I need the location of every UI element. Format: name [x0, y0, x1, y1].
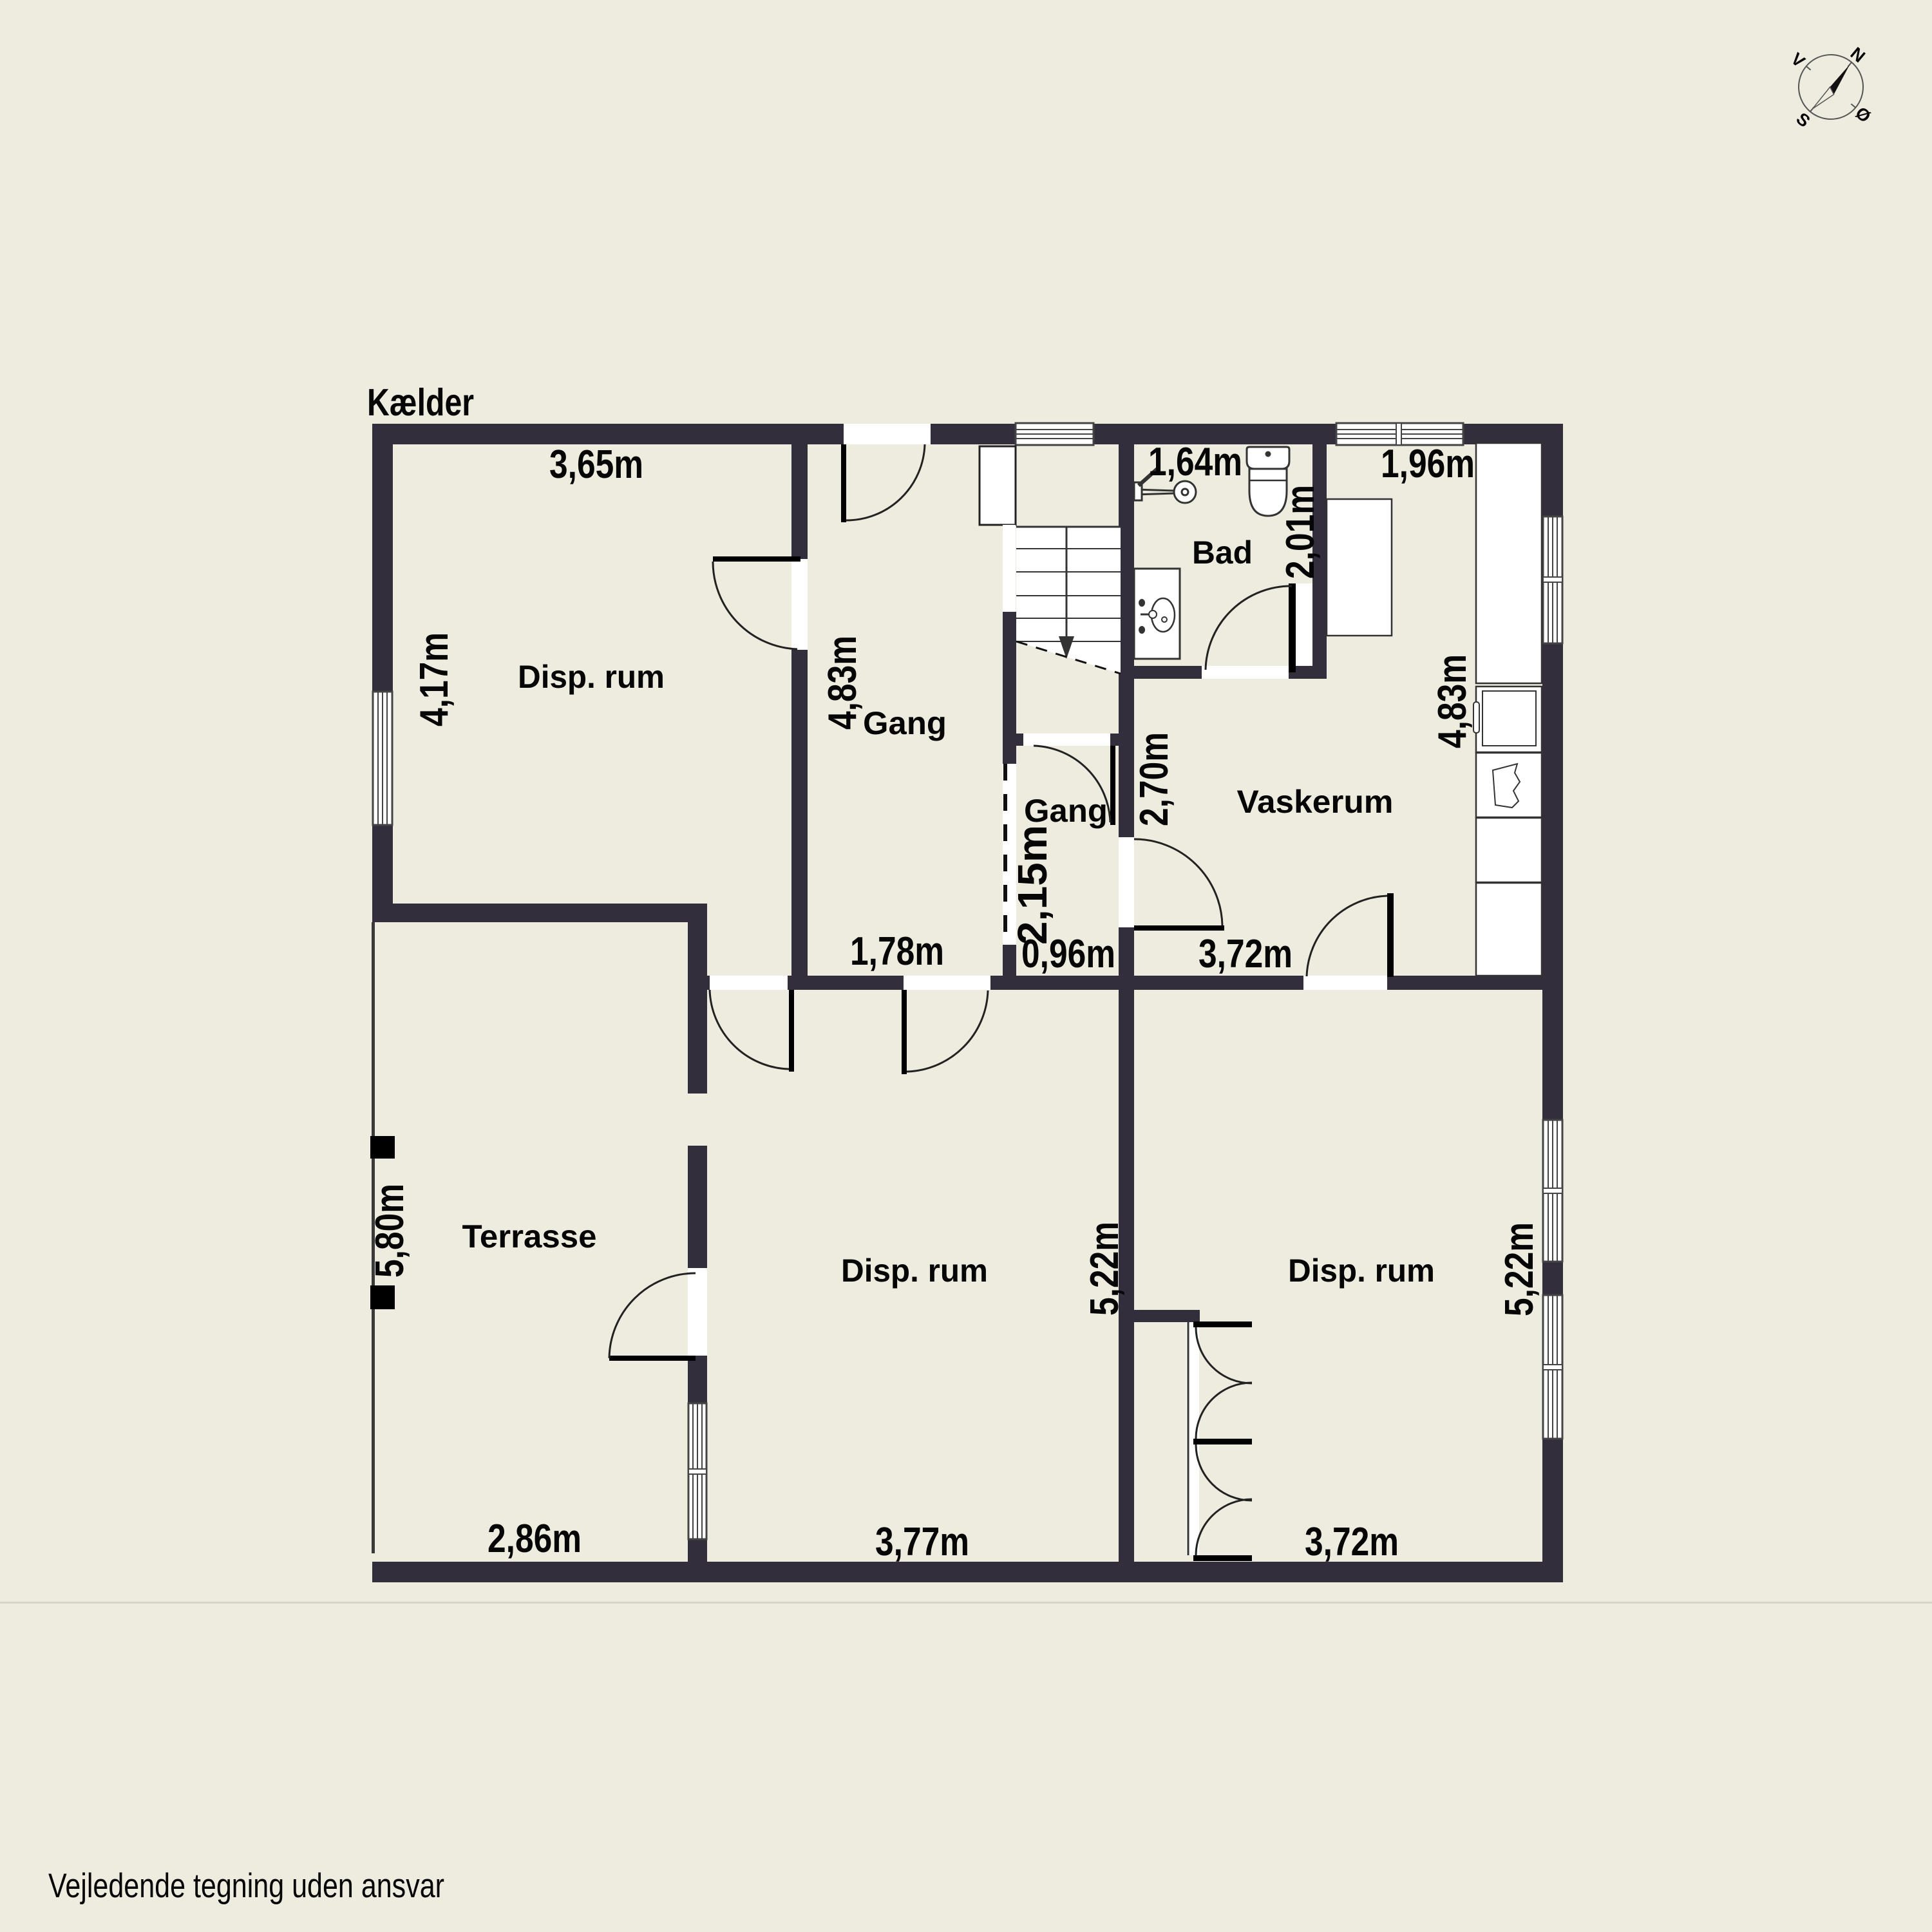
svg-text:3,65m: 3,65m	[549, 442, 643, 487]
svg-text:1,78m: 1,78m	[850, 929, 944, 974]
svg-text:Disp. rum: Disp. rum	[1288, 1253, 1435, 1289]
svg-text:Disp. rum: Disp. rum	[841, 1253, 988, 1289]
svg-text:5,80m: 5,80m	[368, 1184, 412, 1278]
svg-text:5,22m: 5,22m	[1083, 1222, 1127, 1316]
svg-text:Gang: Gang	[863, 705, 947, 741]
svg-text:4,83m: 4,83m	[820, 636, 865, 730]
svg-text:Vejledende tegning uden ansvar: Vejledende tegning uden ansvar	[48, 1867, 444, 1905]
svg-text:2,01m: 2,01m	[1278, 485, 1323, 579]
svg-text:2,86m: 2,86m	[488, 1517, 582, 1561]
svg-text:4,17m: 4,17m	[412, 632, 457, 726]
svg-text:2,70m: 2,70m	[1132, 732, 1177, 826]
svg-text:Gang: Gang	[1024, 793, 1108, 829]
svg-text:5,22m: 5,22m	[1497, 1222, 1542, 1316]
svg-text:Terrasse: Terrasse	[462, 1218, 597, 1255]
svg-text:Bad: Bad	[1192, 535, 1253, 571]
svg-text:3,72m: 3,72m	[1305, 1520, 1399, 1564]
svg-text:4,83m: 4,83m	[1430, 654, 1475, 748]
svg-text:Kælder: Kælder	[367, 381, 474, 424]
svg-text:1,64m: 1,64m	[1148, 440, 1242, 484]
svg-text:1,96m: 1,96m	[1381, 442, 1475, 486]
svg-text:Disp. rum: Disp. rum	[518, 659, 665, 695]
svg-text:2,15m: 2,15m	[1009, 825, 1056, 945]
svg-text:Vaskerum: Vaskerum	[1237, 784, 1394, 820]
svg-text:3,72m: 3,72m	[1198, 932, 1293, 976]
svg-text:3,77m: 3,77m	[875, 1520, 969, 1564]
